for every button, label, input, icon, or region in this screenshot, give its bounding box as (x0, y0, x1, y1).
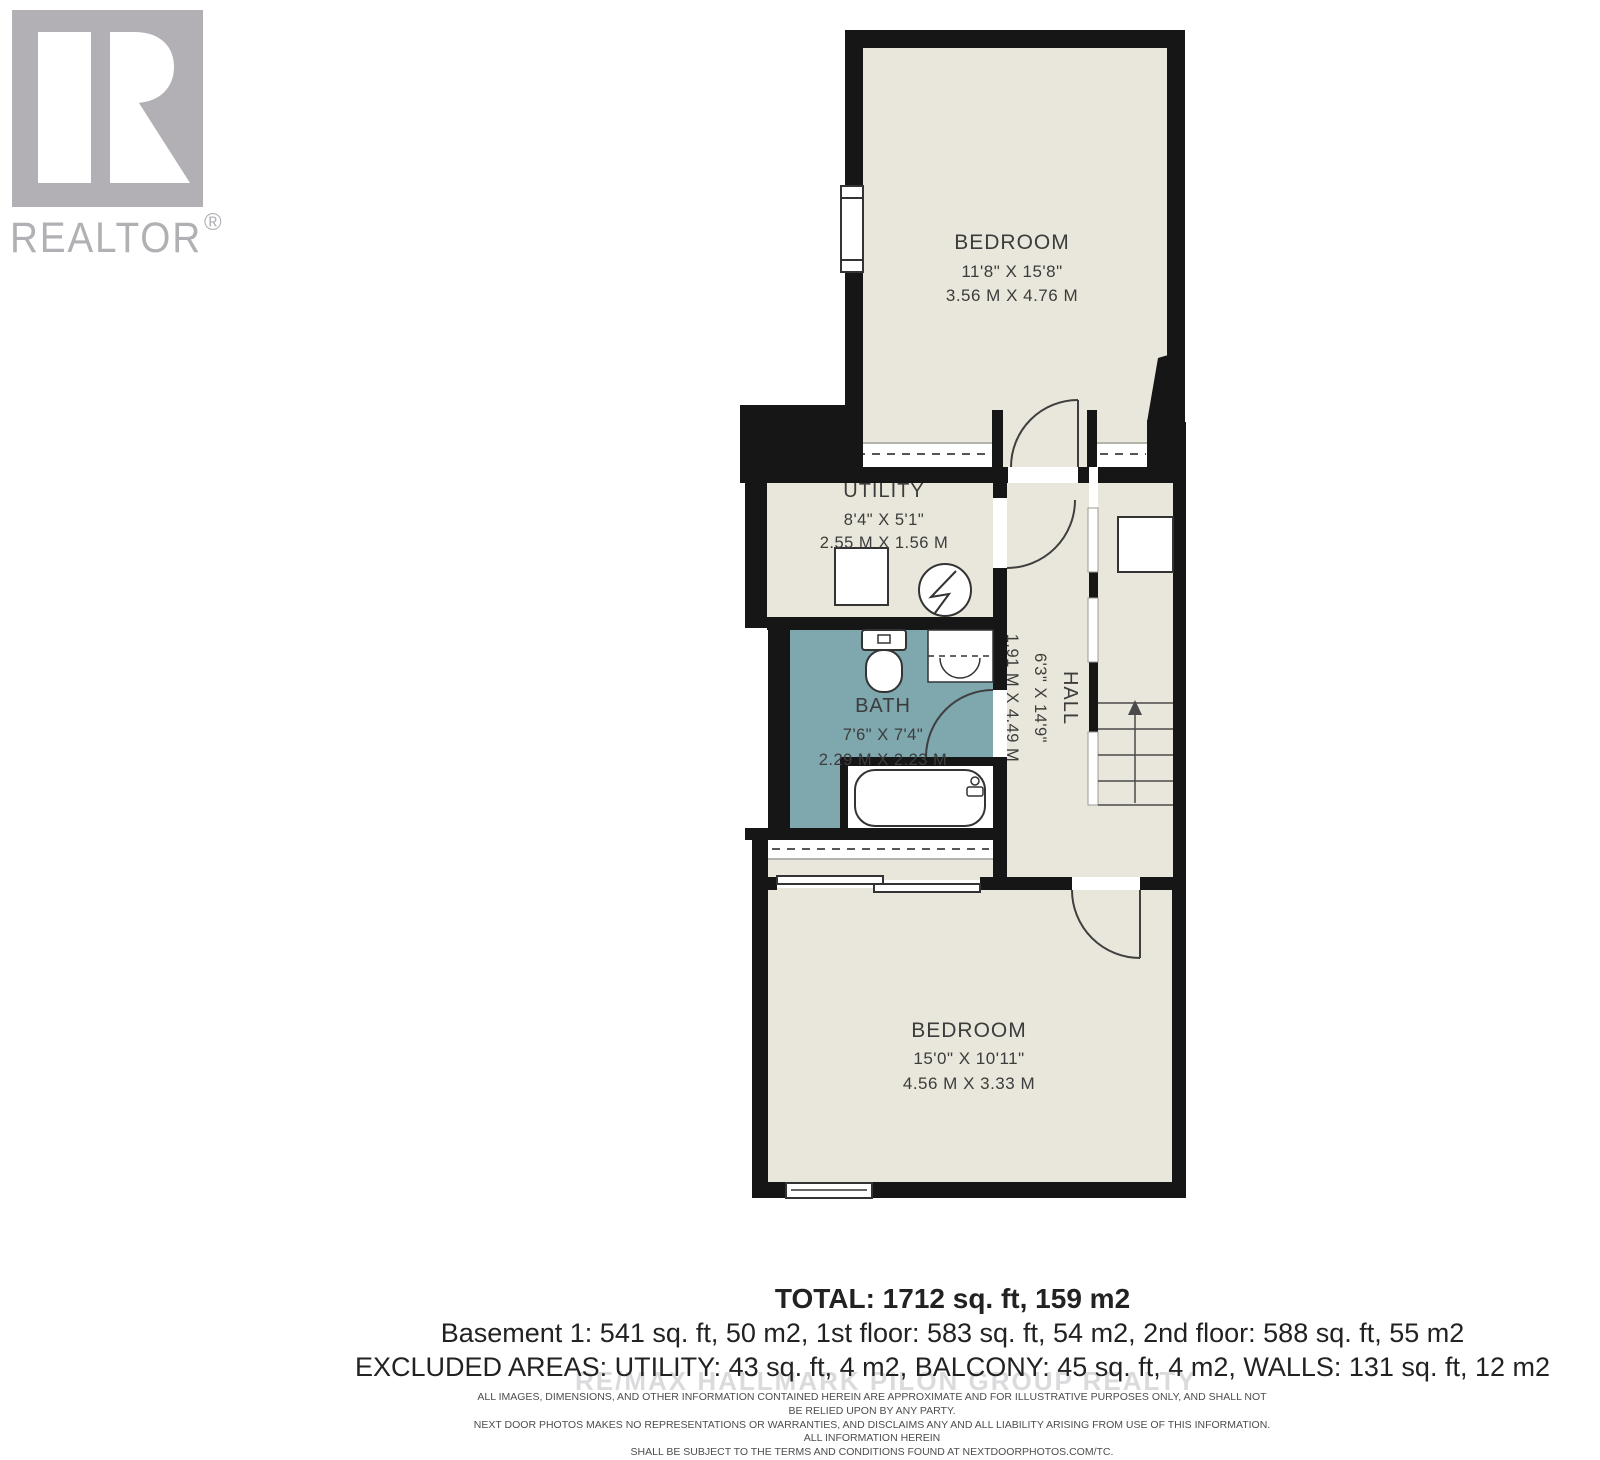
room-dims-ft: 8'4" X 5'1" (844, 511, 924, 529)
bedroom-top-floor (863, 48, 1167, 467)
disclaimer: ALL IMAGES, DIMENSIONS, AND OTHER INFORM… (472, 1391, 1272, 1460)
room-dims-m: 1.91 M X 4.49 M (1003, 634, 1021, 763)
toilet (862, 630, 906, 692)
sliding-door (874, 884, 980, 892)
disclaimer-line: NEXT DOOR PHOTOS MAKES NO REPRESENTATION… (472, 1419, 1272, 1447)
stair-railing (1088, 732, 1098, 805)
closet-box (1118, 517, 1173, 572)
hall-opening (1089, 467, 1098, 508)
room-dims-m: 3.56 M X 4.76 M (946, 286, 1078, 305)
room-label-bath: BATH (855, 695, 911, 717)
disclaimer-line: SHALL BE SUBJECT TO THE TERMS AND CONDIT… (472, 1446, 1272, 1460)
area-summary: TOTAL: 1712 sq. ft, 159 m2 Basement 1: 5… (305, 1282, 1600, 1384)
floor-areas-text: Basement 1: 541 sq. ft, 50 m2, 1st floor… (305, 1316, 1600, 1350)
room-label-bedroom-top: BEDROOM (954, 231, 1070, 254)
realtor-logo-word: REALTOR (10, 214, 202, 262)
room-dims-m: 2.55 M X 1.56 M (820, 534, 949, 552)
room-label-utility: UTILITY (843, 480, 924, 502)
door-threshold (1008, 467, 1078, 483)
realtor-logo: REALTOR ® (10, 10, 222, 262)
floor-plan: REALTOR ® (0, 0, 1600, 1434)
sink-vanity (928, 630, 993, 682)
bathtub (855, 770, 985, 826)
room-dims-m: 4.56 M X 3.33 M (903, 1074, 1035, 1093)
room-dims-ft: 11'8" X 15'8" (961, 262, 1062, 281)
room-dims-m: 2.29 M X 2.23 M (819, 751, 948, 769)
floorplan-page: { "branding": { "logo_word": "REALTOR", … (0, 0, 1600, 1434)
door-threshold (1072, 877, 1140, 890)
sliding-door (777, 876, 883, 884)
room-label-hall: HALL (1059, 671, 1081, 725)
total-area-text: TOTAL: 1712 sq. ft, 159 m2 (305, 1282, 1600, 1316)
water-heater (919, 564, 971, 616)
room-floors (767, 48, 1173, 1184)
door-threshold (993, 498, 1007, 568)
room-label-bedroom-bottom: BEDROOM (911, 1019, 1027, 1042)
disclaimer-line: ALL IMAGES, DIMENSIONS, AND OTHER INFORM… (472, 1391, 1272, 1419)
railing (1088, 598, 1098, 662)
room-dims-ft: 7'6" X 7'4" (843, 726, 923, 744)
excluded-areas-text: EXCLUDED AREAS: UTILITY: 43 sq. ft, 4 m2… (305, 1350, 1600, 1384)
railing (1088, 508, 1098, 572)
room-dims-ft: 6'3" X 14'9" (1031, 653, 1049, 743)
room-dims-ft: 15'0" X 10'11" (913, 1049, 1024, 1068)
utility-appliance (835, 548, 888, 605)
registered-trademark-icon: ® (204, 209, 222, 236)
